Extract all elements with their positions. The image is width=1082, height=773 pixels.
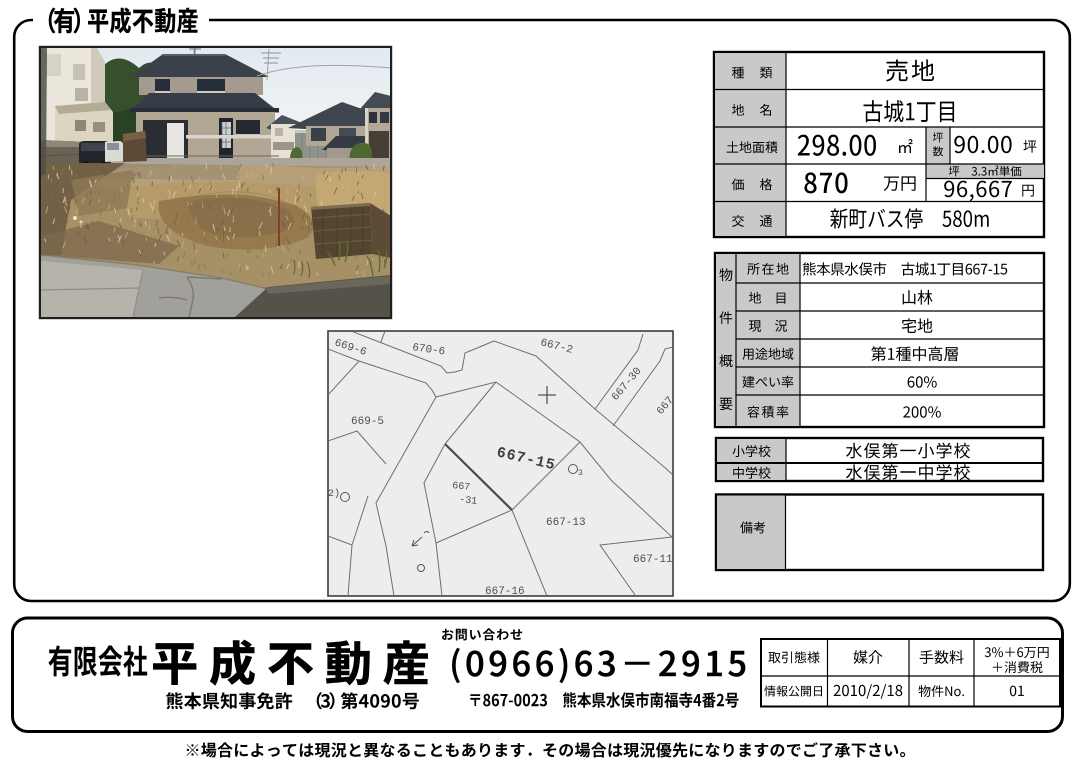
svg-text:-31: -31 bbox=[459, 495, 478, 508]
svg-text:669-5: 669-5 bbox=[351, 416, 384, 428]
svg-text:3: 3 bbox=[578, 469, 583, 478]
svg-text:667-13: 667-13 bbox=[546, 517, 586, 529]
svg-text:667: 667 bbox=[452, 481, 471, 494]
svg-text:2): 2) bbox=[328, 488, 340, 500]
svg-text:667-11: 667-11 bbox=[633, 554, 673, 566]
svg-text:667-16: 667-16 bbox=[485, 586, 525, 598]
